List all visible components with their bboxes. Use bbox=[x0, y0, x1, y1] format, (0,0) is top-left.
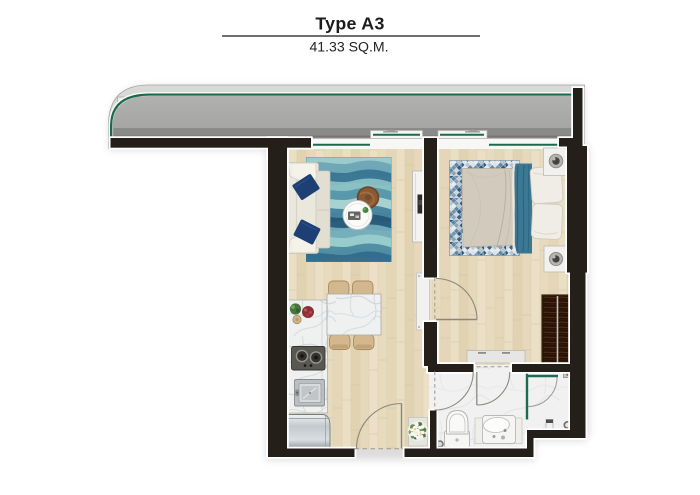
svg-text:41.33 SQ.M.: 41.33 SQ.M. bbox=[309, 39, 388, 55]
svg-text:Type A3: Type A3 bbox=[315, 14, 384, 34]
